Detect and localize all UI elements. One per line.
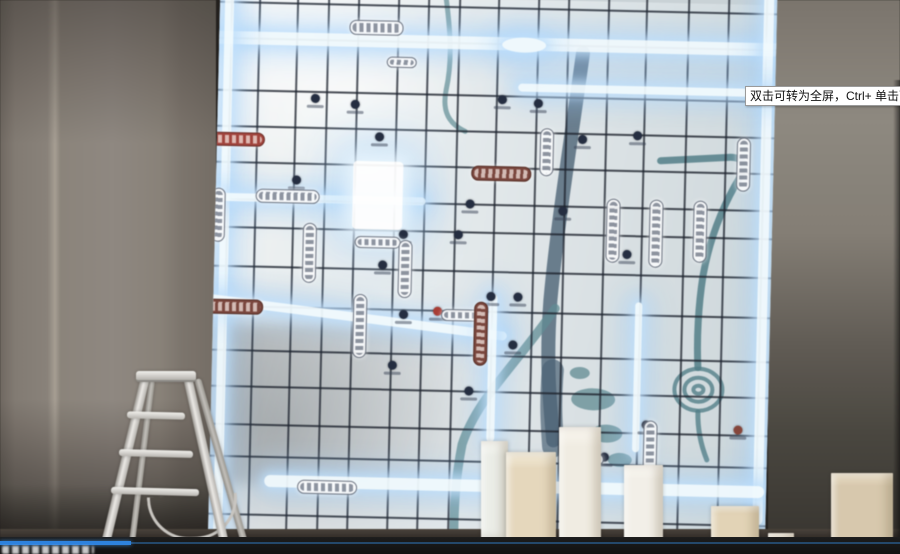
seekbar-fill bbox=[0, 541, 131, 545]
watermark-smudge bbox=[2, 546, 94, 554]
video-frame-photo bbox=[0, 0, 900, 554]
seekbar[interactable] bbox=[0, 537, 900, 554]
right-edge-shadow bbox=[893, 80, 900, 554]
fullscreen-tooltip: 双击可转为全屏，Ctrl+ 单击可转为 bbox=[745, 86, 900, 106]
seek-track[interactable] bbox=[0, 542, 900, 544]
foam-block bbox=[559, 427, 601, 554]
video-player-stage[interactable]: 双击可转为全屏，Ctrl+ 单击可转为 bbox=[0, 0, 900, 554]
blocks-layer bbox=[0, 0, 900, 554]
foam-block bbox=[481, 441, 508, 538]
